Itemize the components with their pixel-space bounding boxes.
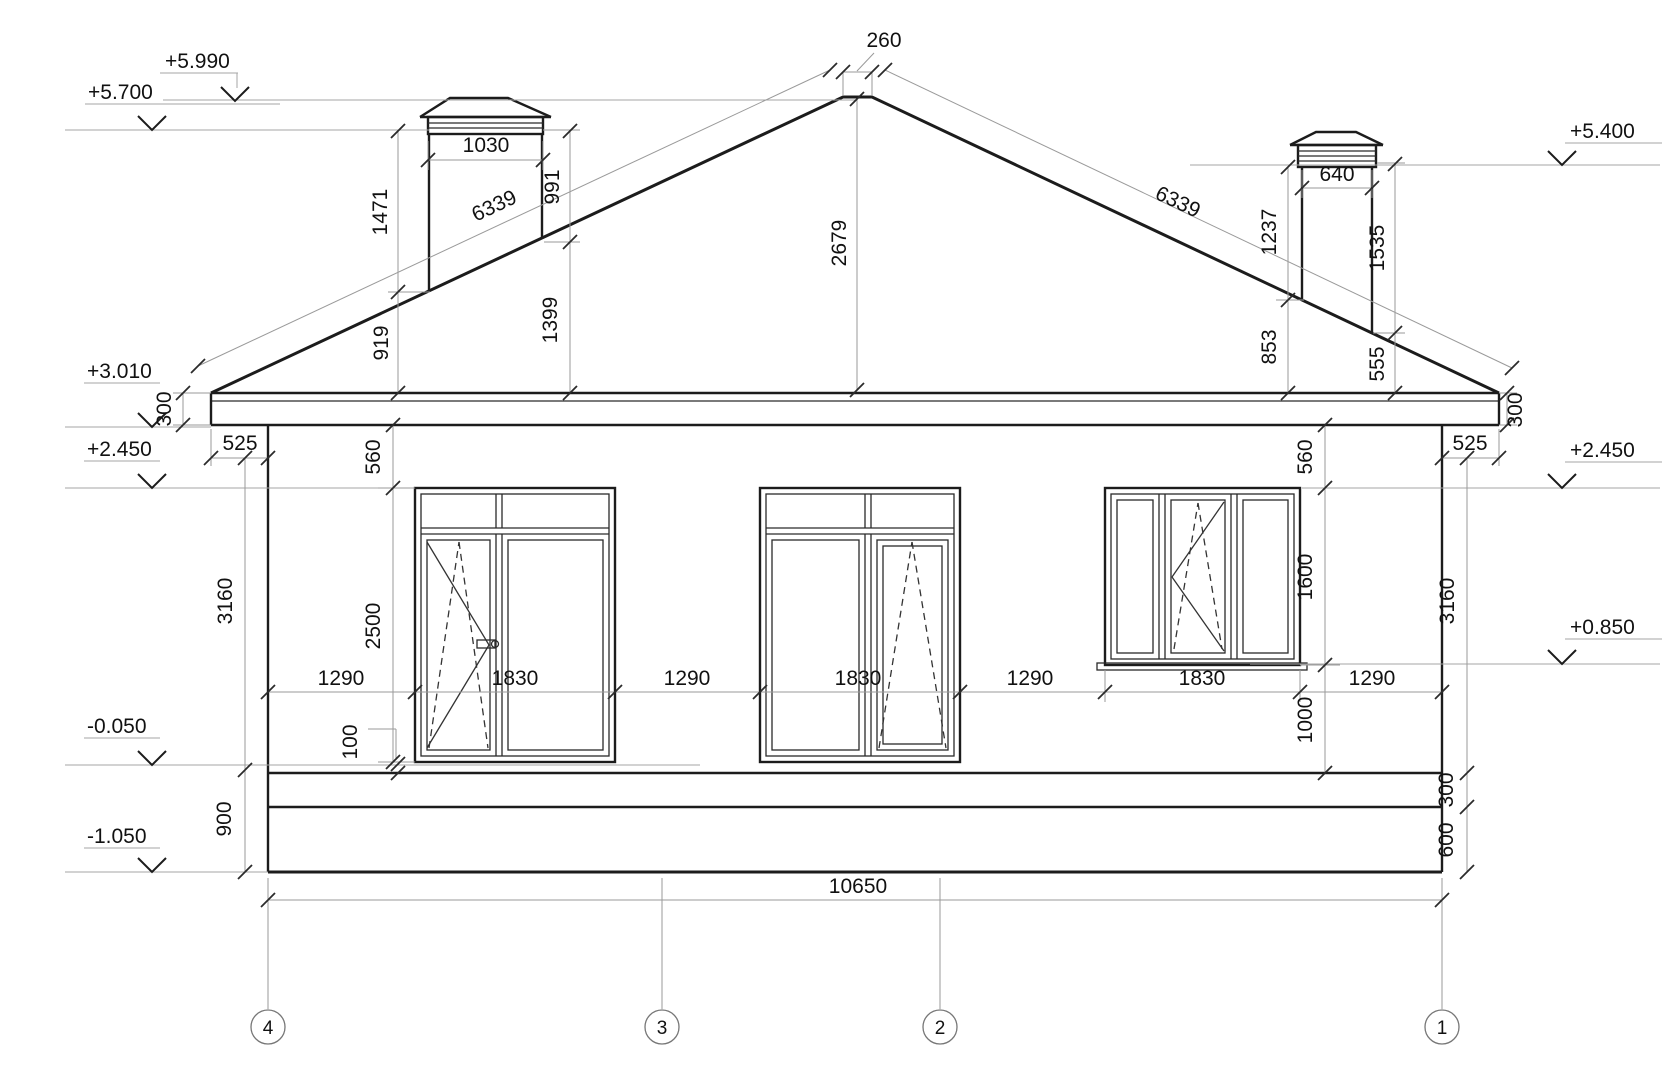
level-value: -1.050 bbox=[87, 825, 147, 848]
level-value: -0.050 bbox=[87, 715, 147, 738]
dim-ridge-width: 260 bbox=[866, 29, 901, 52]
dim-base-left: 900 bbox=[213, 801, 236, 836]
level-value: +5.990 bbox=[165, 50, 230, 73]
elevation-drawing: +5.990 +5.700 +3.010 +2.450 -0.050 -1.05… bbox=[0, 0, 1671, 1080]
level-mark-m0050: -0.050 bbox=[84, 715, 166, 765]
level-value: +2.450 bbox=[87, 438, 152, 461]
dim-wall-right: 3160 bbox=[1436, 578, 1459, 625]
roof-slope bbox=[211, 97, 1499, 393]
dim-chimney-left-h1: 1471 bbox=[369, 189, 392, 236]
level-marks: +5.990 +5.700 +3.010 +2.450 -0.050 -1.05… bbox=[84, 50, 1662, 872]
level-mark-5400: +5.400 bbox=[1548, 120, 1662, 165]
level-mark-5700: +5.700 bbox=[85, 81, 280, 130]
dim-wintop-right: 560 bbox=[1294, 439, 1317, 474]
dim-chimney-left-h4: 919 bbox=[370, 325, 393, 360]
level-value: +5.400 bbox=[1570, 120, 1635, 143]
window-1-door bbox=[415, 488, 615, 762]
dim-win3-height: 1600 bbox=[1294, 554, 1317, 601]
level-mark-0850: +0.850 bbox=[1548, 616, 1662, 664]
dim-overhang-right: 525 bbox=[1452, 432, 1487, 455]
dim-chimney-right-h1: 1237 bbox=[1258, 209, 1281, 256]
dim-overhang-left: 525 bbox=[222, 432, 257, 455]
level-value: +0.850 bbox=[1570, 616, 1635, 639]
dim-chimney-left-h2: 991 bbox=[541, 169, 564, 204]
chimney-left bbox=[420, 98, 551, 291]
plinth bbox=[268, 773, 1442, 872]
grid-axes: 4 3 2 1 bbox=[251, 1010, 1459, 1044]
dim-total-width: 10650 bbox=[829, 875, 887, 898]
dim-plinth-lower: 600 bbox=[1435, 822, 1458, 857]
dim-wall-left: 3160 bbox=[214, 578, 237, 625]
dim-chimney-right-h4: 555 bbox=[1366, 346, 1389, 381]
dim-chimney-right-width: 640 bbox=[1319, 163, 1354, 186]
dim-w7: 1290 bbox=[1349, 667, 1396, 690]
dim-plinth-upper: 300 bbox=[1435, 772, 1458, 807]
level-value: +5.700 bbox=[88, 81, 153, 104]
dim-w2: 1830 bbox=[492, 667, 539, 690]
dim-slope-right: 6339 bbox=[1152, 182, 1204, 223]
axis-label-2: 2 bbox=[935, 1018, 946, 1039]
window-3 bbox=[1097, 488, 1307, 670]
dim-w4: 1830 bbox=[835, 667, 882, 690]
tilt-turn-symbol bbox=[1172, 502, 1224, 651]
door-opening-symbol bbox=[427, 542, 489, 748]
dim-chimney-left-width: 1030 bbox=[463, 134, 510, 157]
level-value: +2.450 bbox=[1570, 439, 1635, 462]
dim-wintop-left: 560 bbox=[362, 439, 385, 474]
axis-label-4: 4 bbox=[263, 1018, 274, 1039]
tilt-opening-symbol bbox=[879, 542, 946, 748]
level-mark-2450-left: +2.450 bbox=[84, 438, 166, 488]
dimension-labels: 260 2679 6339 6339 1030 1471 991 1399 91… bbox=[153, 29, 1527, 898]
dim-fascia-left: 300 bbox=[153, 391, 176, 426]
axis-label-1: 1 bbox=[1437, 1018, 1448, 1039]
level-mark-2450-right: +2.450 bbox=[1548, 439, 1662, 488]
drawing-canvas: +5.990 +5.700 +3.010 +2.450 -0.050 -1.05… bbox=[0, 0, 1671, 1080]
dim-roof-height: 2679 bbox=[828, 220, 851, 267]
axis-label-3: 3 bbox=[657, 1018, 668, 1039]
dim-chimney-right-h3: 853 bbox=[1258, 329, 1281, 364]
dim-sill-gap: 100 bbox=[339, 724, 362, 759]
level-value: +3.010 bbox=[87, 360, 152, 383]
dim-under-win3: 1000 bbox=[1294, 697, 1317, 744]
dim-w3: 1290 bbox=[664, 667, 711, 690]
window-2 bbox=[760, 488, 960, 762]
fascia-band bbox=[211, 393, 1499, 425]
level-mark-m1050: -1.050 bbox=[84, 825, 166, 872]
dim-fascia-right: 300 bbox=[1504, 392, 1527, 427]
level-mark-5990: +5.990 bbox=[160, 50, 249, 101]
dim-win12-height: 2500 bbox=[362, 603, 385, 650]
dim-w1: 1290 bbox=[318, 667, 365, 690]
dim-slope-left: 6339 bbox=[468, 186, 520, 227]
dim-w5: 1290 bbox=[1007, 667, 1054, 690]
dim-chimney-left-h3: 1399 bbox=[539, 297, 562, 344]
dim-w6: 1830 bbox=[1179, 667, 1226, 690]
dim-chimney-right-h2: 1535 bbox=[1366, 225, 1389, 272]
